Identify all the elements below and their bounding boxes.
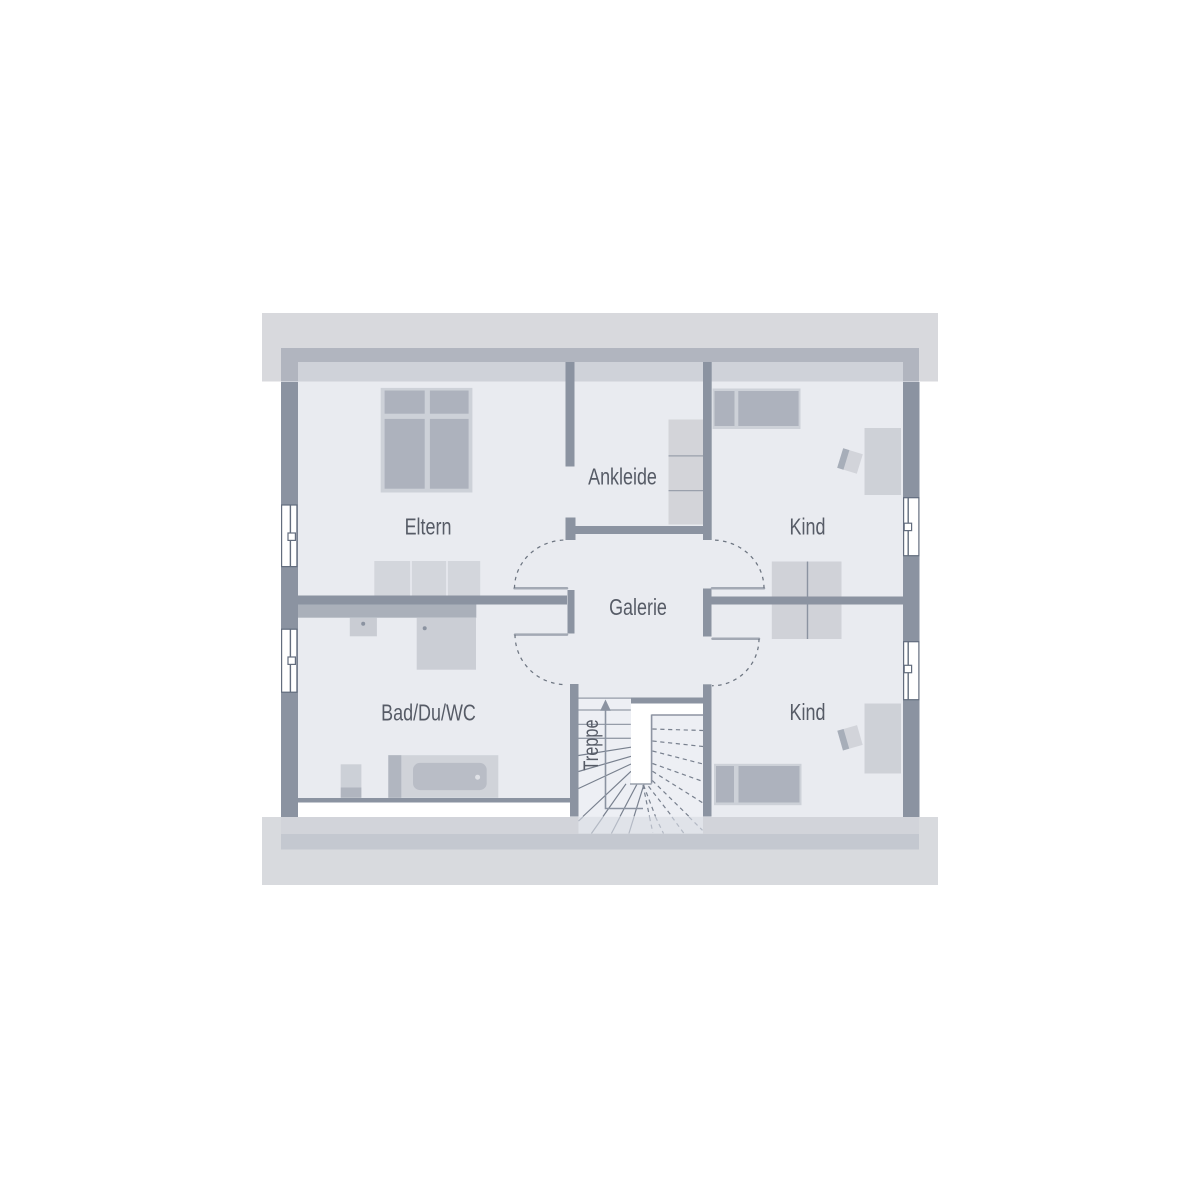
svg-text:Ankleide: Ankleide xyxy=(588,465,657,491)
svg-text:Treppe: Treppe xyxy=(579,719,602,770)
svg-text:Kind: Kind xyxy=(790,700,826,726)
svg-text:Bad/Du/WC: Bad/Du/WC xyxy=(381,701,476,727)
svg-text:Eltern: Eltern xyxy=(405,515,452,541)
svg-text:Galerie: Galerie xyxy=(609,595,667,621)
svg-text:Kind: Kind xyxy=(790,515,826,541)
